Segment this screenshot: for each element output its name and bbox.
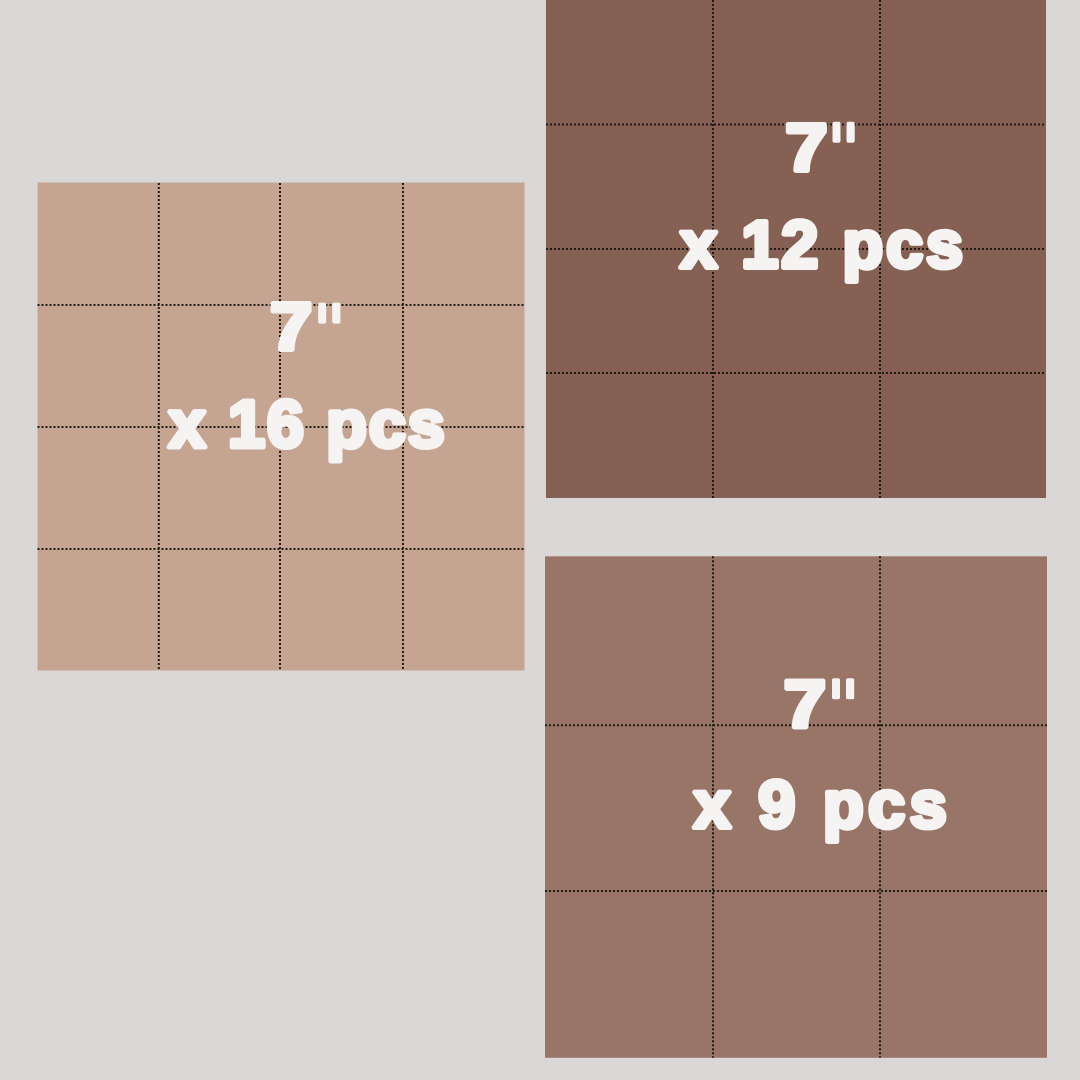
- svg-text:7: 7: [785, 112, 827, 186]
- svg-text:7: 7: [270, 291, 312, 365]
- svg-text:x 9 pcs: x 9 pcs: [694, 769, 952, 843]
- svg-text:7: 7: [784, 668, 826, 742]
- svg-text:x 12 pcs: x 12 pcs: [680, 209, 966, 283]
- svg-text:x 16 pcs: x 16 pcs: [169, 388, 447, 462]
